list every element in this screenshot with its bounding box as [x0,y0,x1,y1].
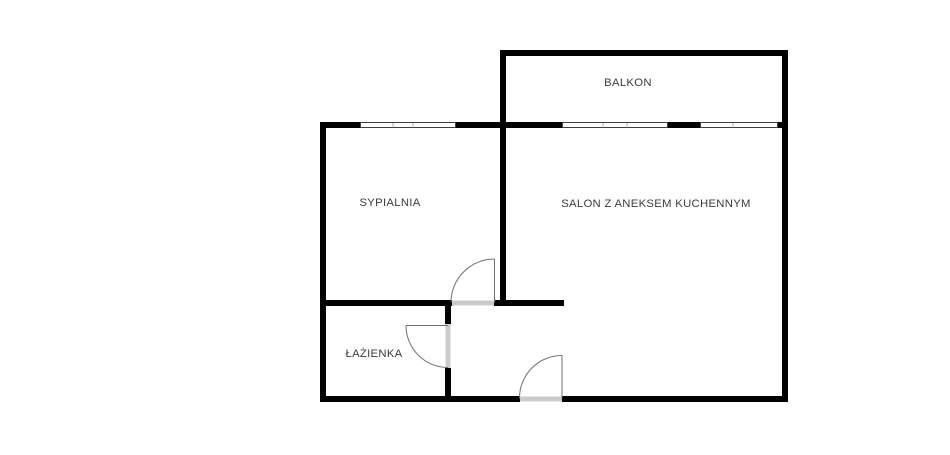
floorplan-drawing: BALKON SYPIALNIA SALON Z ANEKSEM KUCHENN… [0,0,950,455]
lazienka-door-swing [406,326,448,368]
floorplan: BALKON SYPIALNIA SALON Z ANEKSEM KUCHENN… [0,0,950,455]
door-arc [451,259,495,303]
sypialnia-window [361,123,456,128]
entrance-door-threshold [520,397,562,402]
wall-bottom-right [562,396,788,402]
wall-bathroom-right-upper [445,300,451,324]
sypialnia-door-swing [451,259,495,303]
wall-top-bedroom-right [454,122,506,128]
wall-bottom-left [320,396,520,402]
door-arc [519,356,562,399]
wall-bathroom-right-lower [445,368,451,402]
window-frame [563,123,668,128]
wall-left-outer [320,122,326,402]
wall-balcony-top [500,50,788,56]
sypialnia-door-threshold [452,301,494,306]
entrance-door-swing [519,356,562,399]
wall-top-salon-left [506,122,563,128]
salon-window-left [563,123,668,128]
wall-top-bedroom-left [320,122,362,128]
wall-hall-top-right [494,300,564,306]
salon-window-right [701,123,778,128]
wall-top-salon-middle [666,122,702,128]
doors [406,259,562,399]
wall-hall-top-left [320,300,452,306]
lazienka-door-threshold [446,324,451,368]
window-frame [701,123,778,128]
window-frame [361,123,456,128]
room-label-lazienka: ŁAŻIENKA [345,347,402,360]
windows [361,123,778,128]
wall-right-outer [782,50,788,402]
door-arc [406,326,448,368]
room-label-salon: SALON Z ANEKSEM KUCHENNYM [561,198,751,210]
wall-bedroom-salon-divider [500,50,506,306]
room-label-balkon: BALKON [604,77,652,89]
room-label-sypialnia: SYPIALNIA [359,197,420,209]
thresholds [446,301,563,402]
room-labels: BALKON SYPIALNIA SALON Z ANEKSEM KUCHENN… [345,77,750,360]
